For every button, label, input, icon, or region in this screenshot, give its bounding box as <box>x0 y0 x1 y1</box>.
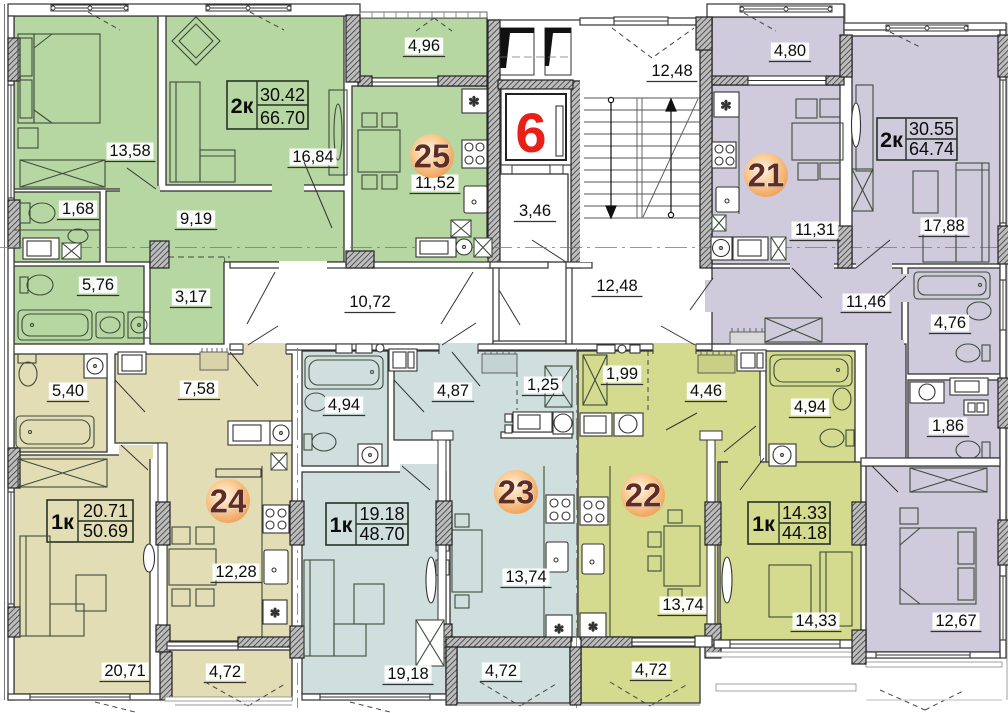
svg-text:3,46: 3,46 <box>519 202 551 220</box>
svg-text:48.70: 48.70 <box>359 524 404 544</box>
svg-text:7,58: 7,58 <box>183 380 215 398</box>
svg-text:11,46: 11,46 <box>846 293 886 311</box>
svg-text:2к: 2к <box>880 128 903 152</box>
svg-text:3,17: 3,17 <box>175 288 207 306</box>
svg-text:4,72: 4,72 <box>209 663 241 681</box>
svg-text:12,28: 12,28 <box>215 563 256 581</box>
svg-text:2к: 2к <box>231 94 254 118</box>
svg-text:1,99: 1,99 <box>606 365 638 383</box>
svg-text:✻: ✻ <box>469 94 480 109</box>
svg-text:9,19: 9,19 <box>180 210 212 228</box>
svg-text:1к: 1к <box>51 510 74 534</box>
svg-text:4,94: 4,94 <box>794 398 826 416</box>
svg-text:4,46: 4,46 <box>690 382 722 400</box>
svg-text:✻: ✻ <box>554 622 564 636</box>
svg-text:4,87: 4,87 <box>437 382 469 400</box>
svg-text:12,48: 12,48 <box>596 277 637 295</box>
svg-text:✻: ✻ <box>721 98 732 113</box>
svg-text:21: 21 <box>748 157 785 194</box>
svg-text:30.55: 30.55 <box>909 119 954 139</box>
svg-text:4,96: 4,96 <box>408 37 440 55</box>
svg-text:13,74: 13,74 <box>505 568 546 586</box>
svg-text:14.33: 14.33 <box>782 503 827 523</box>
svg-text:1,68: 1,68 <box>62 200 94 218</box>
svg-text:13,74: 13,74 <box>662 596 703 614</box>
svg-text:4,76: 4,76 <box>934 314 966 332</box>
svg-text:20.71: 20.71 <box>83 501 128 521</box>
svg-text:30.42: 30.42 <box>260 85 305 105</box>
svg-text:12,48: 12,48 <box>651 62 692 80</box>
svg-text:1к: 1к <box>330 513 353 537</box>
svg-text:19.18: 19.18 <box>359 504 404 524</box>
svg-text:✻: ✻ <box>588 620 598 634</box>
svg-text:11,31: 11,31 <box>795 221 835 239</box>
svg-text:64.74: 64.74 <box>909 139 954 159</box>
svg-text:44.18: 44.18 <box>782 523 827 543</box>
svg-text:5,40: 5,40 <box>52 382 84 400</box>
svg-text:25: 25 <box>414 138 451 175</box>
svg-text:4,72: 4,72 <box>635 661 667 679</box>
svg-text:1,86: 1,86 <box>932 417 964 435</box>
svg-text:4,94: 4,94 <box>328 396 360 414</box>
svg-text:20,71: 20,71 <box>104 662 145 680</box>
svg-text:50.69: 50.69 <box>83 521 128 541</box>
svg-text:1к: 1к <box>752 512 775 536</box>
svg-text:✻: ✻ <box>270 606 280 620</box>
svg-text:5,76: 5,76 <box>82 276 114 294</box>
svg-text:10,72: 10,72 <box>349 293 390 311</box>
svg-text:13,58: 13,58 <box>109 142 150 160</box>
svg-text:1,25: 1,25 <box>527 376 559 394</box>
svg-text:4,72: 4,72 <box>485 662 517 680</box>
svg-text:6: 6 <box>515 101 546 164</box>
svg-text:16,84: 16,84 <box>292 148 333 166</box>
svg-text:24: 24 <box>210 483 247 520</box>
svg-text:22: 22 <box>625 477 662 514</box>
svg-text:66.70: 66.70 <box>260 108 305 128</box>
svg-text:14,33: 14,33 <box>795 612 836 630</box>
svg-text:23: 23 <box>498 474 535 511</box>
svg-text:19,18: 19,18 <box>387 665 428 683</box>
svg-text:12,67: 12,67 <box>935 612 976 630</box>
svg-text:17,88: 17,88 <box>923 217 964 235</box>
svg-text:4,80: 4,80 <box>774 42 806 60</box>
